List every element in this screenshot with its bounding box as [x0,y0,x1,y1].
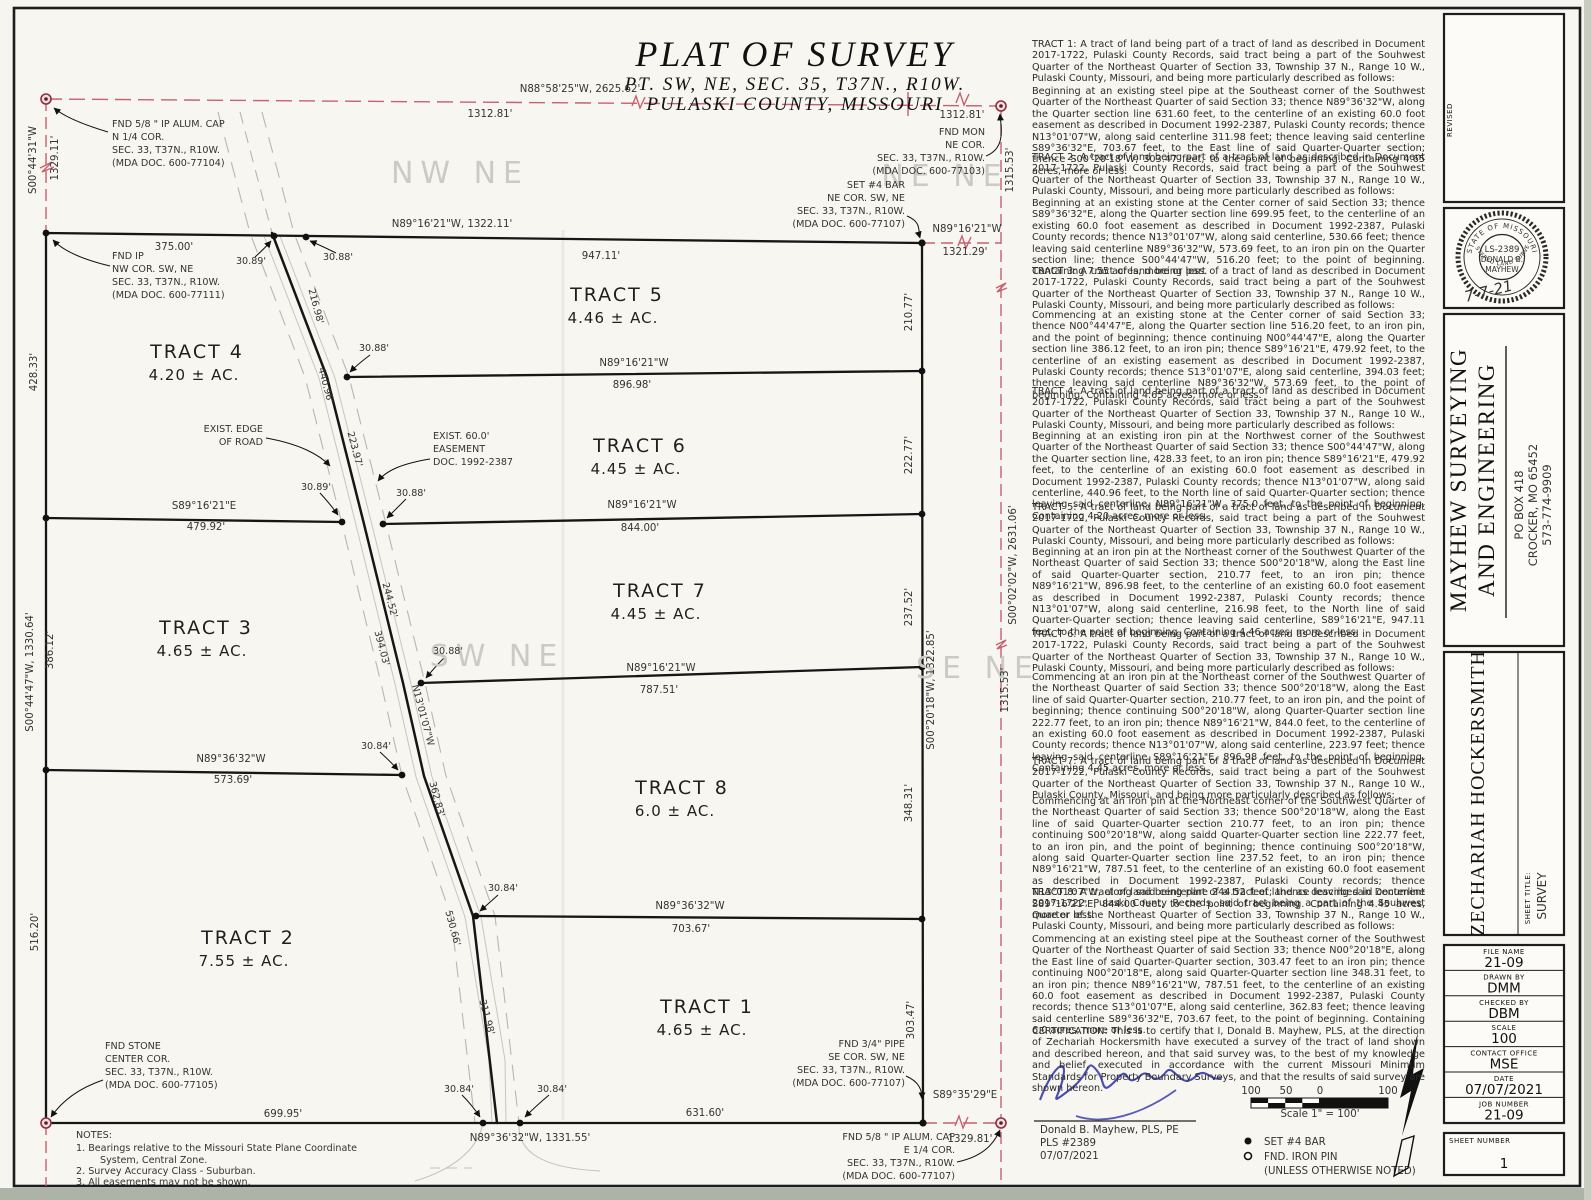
dim-l4-dist: 573.69' [214,775,252,786]
notes-line2: 2. Survey Accuracy Class - Suburban. [76,1166,256,1177]
legend-note: (UNLESS OTHERWISE NOTED) [1264,1166,1416,1177]
dim-stub-dist: 1321.29' [943,247,988,258]
sheet-number-label: SHEET NUMBER [1449,1137,1511,1145]
dim-top-dist-left: 1312.81' [468,109,513,120]
tract5-name: TRACT 5 [569,284,664,306]
note-set-line1: SET #4 BAR [847,180,905,191]
seal-name-1: DONALD B. [1481,255,1523,264]
note-e14-line3: SEC. 33, T37N., R10W. [847,1158,955,1169]
dim-l3-bearing: N89°16'21"W [626,663,695,674]
note-e14-line4: (MDA DOC. 600-77107) [842,1171,955,1182]
note-pipe-line3: SEC. 33, T37N., R10W. [797,1065,905,1076]
signer-date: 07/07/2021 [1040,1151,1099,1162]
tract6-area: 4.45 ± AC. [591,460,682,478]
notes-line3: 3. All easements may not be shown. [76,1177,251,1188]
info-table: FILE NAME 21-09 DRAWN BY DMM CHECKED BY … [1444,945,1564,1123]
tract2-area: 7.55 ± AC. [199,952,290,970]
note-n14-line4: (MDA DOC. 600-77104) [112,158,225,169]
dim-top-3089: 30.89' [236,256,266,267]
note-nw-line4: (MDA DOC. 600-77111) [112,290,225,301]
company-name-1: MAYHEW SURVEYING [1446,348,1471,612]
tract5-area: 4.46 ± AC. [568,309,659,327]
note-n14-line2: N 1/4 COR. [112,132,164,143]
quarter-label-nwne: NW NE [391,156,529,191]
tract5-desc: Beginning at an iron pin at the Northeas… [1032,547,1425,638]
dim-west-42833: 428.33' [29,353,40,391]
dim-ssec-bearing: S89°35'29"E [933,1090,997,1101]
dim-l1-dist: 896.98' [613,380,651,391]
tract8-area: 6.0 ± AC. [635,802,715,820]
note-pipe-line2: SE COR. SW, NE [828,1052,905,1063]
dim-east-30347: 303.47' [906,1001,917,1039]
label-edge-of-road-2: OF ROAD [219,437,263,448]
tract4-intro: TRACT 4: A tract of land being part of a… [1032,386,1425,432]
dim-l2e-bearing: N89°16'21"W [607,500,676,511]
tract3-area: 4.65 ± AC. [157,642,248,660]
dim-l2w-dist: 479.92' [187,522,225,533]
note-n14-line1: FND 5/8 " IP ALUM. CAP [112,119,225,130]
legend-fnd-label: FND. IRON PIN [1264,1152,1338,1163]
tract8-intro: TRACT 8: A tract of land being part of a… [1032,887,1425,933]
sheet-title-value: SURVEY [1535,872,1549,920]
page-title: PLAT OF SURVEY [634,34,955,74]
label-easement-2: EASEMENT [433,444,485,455]
tract1-intro: TRACT 1: A tract of land being part of a… [1032,39,1425,85]
signer-name: Donald B. Mayhew, PLS, PE [1040,1125,1179,1136]
label-edge-of-road-1: EXIST. EDGE [204,424,263,435]
dim-stub-bearing: N89°16'21"W [932,224,1001,235]
tract4-area: 4.20 ± AC. [149,366,240,384]
row-date-value: 07/07/2021 [1465,1082,1543,1098]
note-set-line2: NE COR. SW, NE [827,193,905,204]
dim-south-69995: 699.95' [264,1109,302,1120]
dim-l2e-dist: 844.00' [621,523,659,534]
note-ne-line1: FND MON [939,127,985,138]
dim-east-section-bearing: S00°02'02"W, 2631.06' [1008,505,1019,624]
dim-top-3088: 30.88' [323,252,353,263]
note-set-line4: (MDA DOC. 600-77107) [792,219,905,230]
note-pipe-line1: FND 3/4" PIPE [839,1039,906,1050]
seal-name-2: MAYHEW [1485,265,1519,274]
dim-top-bearing: N88°58'25"W, 2625.62' [520,84,641,95]
note-e14-line2: E 1/4 COR. [904,1145,955,1156]
label-easement-3: DOC. 1992-2387 [433,457,513,468]
dim-east-1315b: 1315.53' [1000,668,1011,713]
company-addr-3: 573-774-9909 [1540,464,1554,545]
page-subtitle-2: PULASKI COUNTY, MISSOURI [646,94,944,115]
page-subtitle-1: PT. SW, NE, SEC. 35, T37N., R10W. [624,74,966,95]
revised-label: REVISED [1446,103,1454,137]
dim-east-1315a: 1315.53' [1005,148,1016,193]
note-nw-line2: NW COR. SW, NE [112,264,193,275]
dim-l5-dist: 703.67' [672,924,710,935]
tract3-intro: TRACT 3: A tract of land being part of a… [1032,266,1425,312]
dim-west-bearing: S00°44'47"W, 1330.64' [25,612,36,731]
dim-east-22277: 222.77' [904,436,915,474]
tract2-intro: TRACT 2: A tract of land being part of a… [1032,152,1425,198]
note-pipe-line4: (MDA DOC. 600-77107) [792,1078,905,1089]
tract6-intro: TRACT 6: A tract of land being part of a… [1032,629,1425,675]
notes-line1b: System, Central Zone. [100,1155,207,1166]
notes-line1: 1. Bearings relative to the Missouri Sta… [76,1143,357,1154]
tract8-desc: Commencing at an existing steel pipe at … [1032,934,1425,1037]
tract7-intro: TRACT 7: A tract of land being part of a… [1032,756,1425,802]
note-stone-line2: CENTER COR. [105,1054,170,1065]
row-file-name-value: 21-09 [1484,955,1523,971]
sheet-number-value: 1 [1500,1156,1509,1172]
dim-top-dist-right: 1312.81' [940,110,985,121]
company-name-2: AND ENGINEERING [1474,363,1499,597]
note-set-line3: SEC. 33, T37N., R10W. [797,206,905,217]
dim-cross-3084-s2: 30.84' [537,1084,567,1095]
tract6-name: TRACT 6 [592,435,687,457]
dim-cross-3089-l2: 30.89' [301,482,331,493]
dim-l5-bearing: N89°36'32"W [655,901,724,912]
seal-ls-number: LS-2389 [1485,245,1520,255]
dim-l3-dist: 787.51' [640,685,678,696]
note-ne-line3: SEC. 33, T37N., R10W. [877,153,985,164]
scale-bar-right [1320,1098,1389,1108]
note-nw-line3: SEC. 33, T37N., R10W. [112,277,220,288]
row-checked-by-value: DBM [1488,1006,1519,1022]
note-e14-line1: FND 5/8 " IP ALUM. CAP [842,1132,955,1143]
tract7-area: 4.45 ± AC. [611,605,702,623]
tract5-intro: TRACT 5: A tract of land being part of a… [1032,502,1425,548]
tract3-name: TRACT 3 [158,617,253,639]
legend-set-bar-icon [1245,1138,1252,1145]
dim-north-375: 375.00' [155,242,193,253]
dim-cross-3084-l4: 30.84' [361,741,391,752]
note-stone-line3: SEC. 33, T37N., R10W. [105,1067,213,1078]
dim-east-34831: 348.31' [904,784,915,822]
dim-west-38612: 386.12' [45,631,56,669]
dim-south-63160: 631.60' [686,1108,724,1119]
dim-l1-bearing: N89°16'21"W [599,358,668,369]
revised-box [1444,14,1564,202]
dim-west-section-bearing: S00°44'31"W [28,126,39,194]
dim-south-bearing: N89°36'32"W, 1331.55' [470,1133,591,1144]
note-ne-line2: NE COR. [945,140,985,151]
certification-text: CERTIFICATION: This is to certify that I… [1032,1026,1425,1094]
dim-cross-3084-l5: 30.84' [488,883,518,894]
dim-north-bearing: N89°16'21"W, 1322.11' [392,219,513,230]
client-name: ZECHARIAH HOCKERSMITH [1467,650,1489,936]
tract1-area: 4.65 ± AC. [657,1021,748,1039]
row-scale-value: 100 [1491,1031,1517,1047]
dim-east-bearing: S00°20'18"W, 1322.85' [926,630,937,749]
tract2-name: TRACT 2 [200,927,295,949]
tract8-name: TRACT 8 [634,777,729,799]
dim-north-947: 947.11' [582,251,620,262]
dim-west-section-dist: 1329.11' [50,136,61,181]
scale-caption: Scale 1" = 100' [1280,1109,1359,1120]
tract4-name: TRACT 4 [149,341,244,363]
note-stone-line1: FND STONE [105,1041,161,1052]
tract7-name: TRACT 7 [612,580,707,602]
company-addr-1: PO BOX 418 [1512,470,1526,539]
dim-cross-3084-s1: 30.84' [444,1084,474,1095]
note-nw-line1: FND IP [112,251,144,262]
legend-found-pin-icon [1245,1153,1252,1160]
note-ne-line4: (MDA DOC. 600-77103) [872,166,985,177]
note-stone-line4: (MDA DOC. 600-77105) [105,1080,218,1091]
dim-l4-bearing: N89°36'32"W [196,754,265,765]
dim-cross-3088-l1: 30.88' [359,343,389,354]
note-n14-line3: SEC. 33, T37N., R10W. [112,145,220,156]
dim-cross-3088-l3: 30.88' [433,646,463,657]
legend-set-label: SET #4 BAR [1264,1137,1326,1148]
row-contact-office-value: MSE [1490,1057,1519,1073]
dim-west-51620: 516.20' [30,913,41,951]
dim-east-21077: 210.77' [904,293,915,331]
tract1-name: TRACT 1 [659,996,754,1018]
dim-east-23752: 237.52' [904,588,915,626]
row-job-number-value: 21-09 [1484,1107,1523,1123]
signer-pls: PLS #2389 [1040,1138,1096,1149]
label-easement-1: EXIST. 60.0' [433,431,489,442]
plat-of-survey-sheet: { "title": { "main": "PLAT OF SURVEY", "… [0,0,1591,1200]
dim-l2w-bearing: S89°16'21"E [172,501,236,512]
notes-heading: NOTES: [76,1130,112,1141]
sheet-title-label: SHEET TITLE: [1524,872,1532,924]
row-drawn-by-value: DMM [1487,980,1521,996]
company-addr-2: CROCKER, MO 65452 [1526,444,1540,566]
dim-cross-3088-l2: 30.88' [396,488,426,499]
